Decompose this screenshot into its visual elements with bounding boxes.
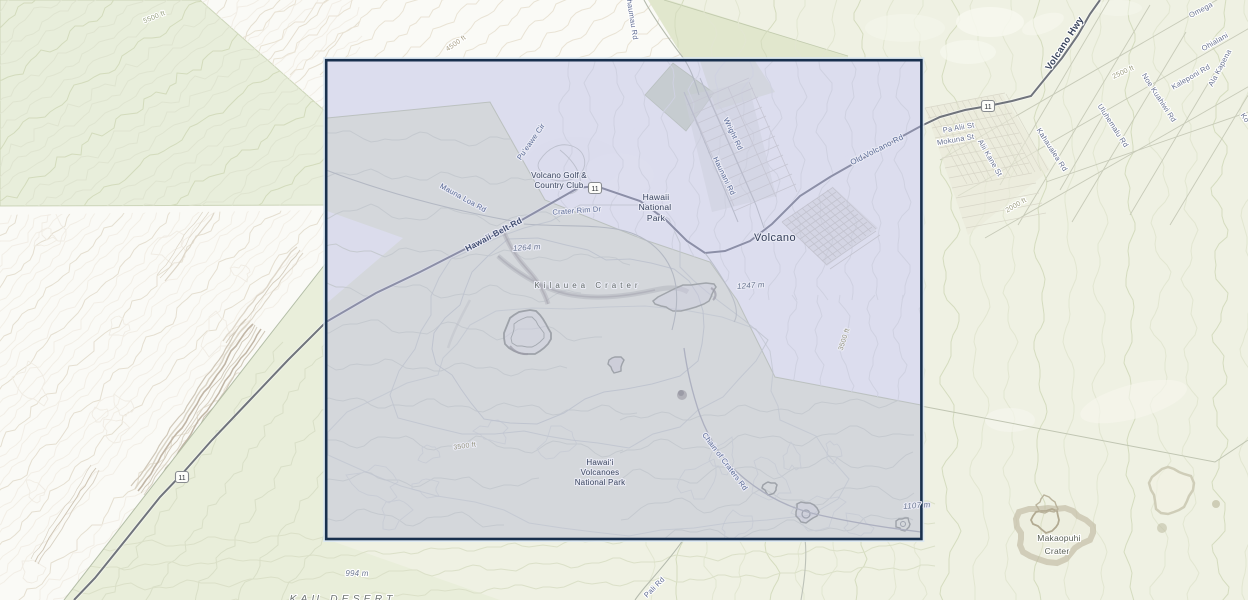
svg-text:Volcano Golf &: Volcano Golf & bbox=[531, 171, 587, 180]
svg-text:11: 11 bbox=[984, 104, 991, 111]
svg-text:11: 11 bbox=[178, 475, 185, 482]
svg-text:KAU DESERT: KAU DESERT bbox=[290, 593, 397, 600]
svg-text:Crater: Crater bbox=[1045, 546, 1070, 556]
svg-text:Hawaii: Hawaii bbox=[643, 192, 670, 202]
svg-text:994 m: 994 m bbox=[345, 569, 368, 578]
svg-text:Makaopuhi: Makaopuhi bbox=[1037, 533, 1080, 543]
svg-text:Park: Park bbox=[647, 213, 666, 223]
svg-text:11: 11 bbox=[591, 186, 598, 193]
svg-text:National Park: National Park bbox=[575, 478, 626, 487]
svg-text:Country Club: Country Club bbox=[534, 181, 583, 190]
svg-text:National: National bbox=[639, 202, 672, 212]
svg-text:Kilauea Crater: Kilauea Crater bbox=[534, 281, 641, 290]
svg-text:Hawaiʻi: Hawaiʻi bbox=[586, 458, 613, 467]
svg-text:Volcanoes: Volcanoes bbox=[581, 468, 620, 477]
svg-text:Volcano: Volcano bbox=[754, 232, 796, 244]
svg-text:1107 m: 1107 m bbox=[903, 500, 931, 511]
